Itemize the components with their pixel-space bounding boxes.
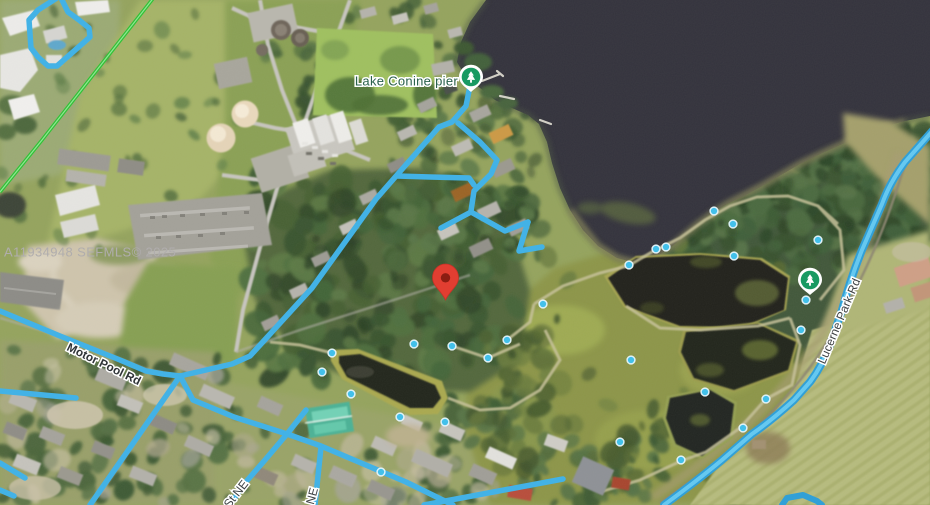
svg-text:Lake Conine pier: Lake Conine pier: [355, 74, 458, 89]
svg-text:A11934948 SEFMLS© 2025: A11934948 SEFMLS© 2025: [4, 245, 176, 260]
